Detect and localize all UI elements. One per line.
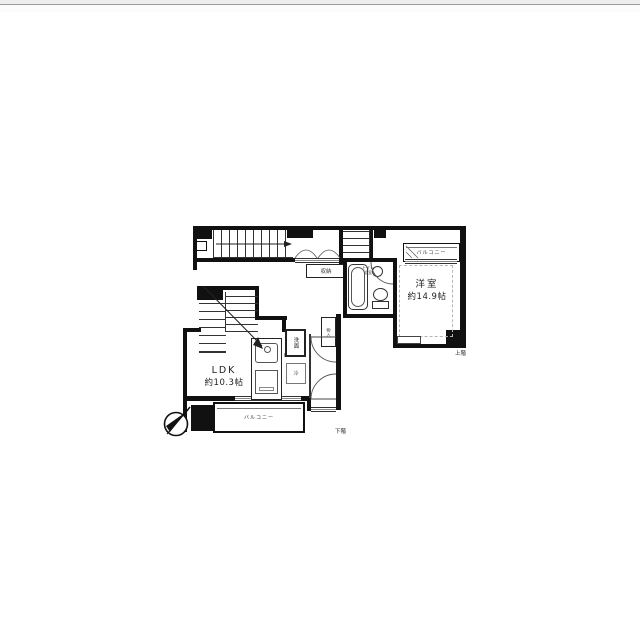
washstand-label: 洗面: [292, 337, 300, 349]
bedroom-counter: [397, 336, 421, 344]
staircase-upper-mid: [343, 230, 370, 260]
window: [405, 259, 457, 264]
staircase-lower-down: [199, 298, 226, 353]
window-arc: [318, 250, 340, 258]
kitchen-faucet: [264, 346, 271, 353]
balcony-upper-label: バルコニー: [417, 249, 447, 256]
window: [295, 258, 341, 263]
closet-storage: 収納: [306, 264, 346, 278]
wall-column: [374, 230, 386, 238]
toilet: [373, 288, 388, 301]
hall-storage: 物入: [321, 317, 336, 347]
bedroom-size: 約14.9帖: [393, 291, 461, 303]
wall-segment: [343, 258, 397, 262]
balcony-lower-label: バルコニー: [244, 414, 274, 421]
page-top-shade: [0, 5, 640, 12]
closet-label: 収納: [320, 267, 331, 275]
washstand: 洗面: [285, 329, 306, 357]
door-frame: [309, 334, 311, 398]
wall-segment: [343, 258, 347, 318]
wall-segment: [343, 314, 397, 318]
balcony-lower: バルコニー: [213, 402, 305, 433]
staircase-lower-up: [225, 292, 258, 332]
bedroom-label: 洋室 約14.9帖: [393, 278, 461, 303]
bath-label: トイレ 浴室: [358, 265, 378, 275]
window: [311, 407, 336, 412]
fridge-space: 冷: [286, 363, 306, 384]
fridge-label: 冷: [293, 370, 298, 377]
door-arc: [311, 374, 336, 399]
ldk-label: LDK 約10.3帖: [186, 364, 262, 389]
ldk-size: 約10.3帖: [186, 377, 262, 389]
toilet-tank: [372, 301, 389, 309]
plan-line-overlay: [0, 0, 640, 630]
floor-tag-lower: 下階: [320, 427, 346, 435]
window-arc: [295, 250, 317, 258]
floorplan-image: 収納 トイレ 浴室 バルコニー 洋室 約14.9帖 上階: [0, 0, 640, 630]
wall-segment: [193, 258, 295, 262]
wall-segment: [393, 258, 397, 348]
wall-column: [195, 229, 212, 239]
wall-segment: [183, 396, 235, 401]
bedroom-name: 洋室: [393, 278, 461, 291]
floor-tag-upper: 上階: [440, 349, 466, 357]
hall-storage-label: 物入: [326, 328, 332, 337]
balcony-rail-line: [406, 247, 457, 248]
wall-segment: [336, 314, 341, 410]
ldk-name: LDK: [186, 364, 262, 377]
staircase-upper-corridor: [213, 230, 293, 258]
balcony-rail-line: [217, 408, 301, 409]
pillar: [196, 241, 207, 251]
wall-column: [191, 405, 213, 431]
bath-label-line2: 浴室: [358, 270, 378, 275]
